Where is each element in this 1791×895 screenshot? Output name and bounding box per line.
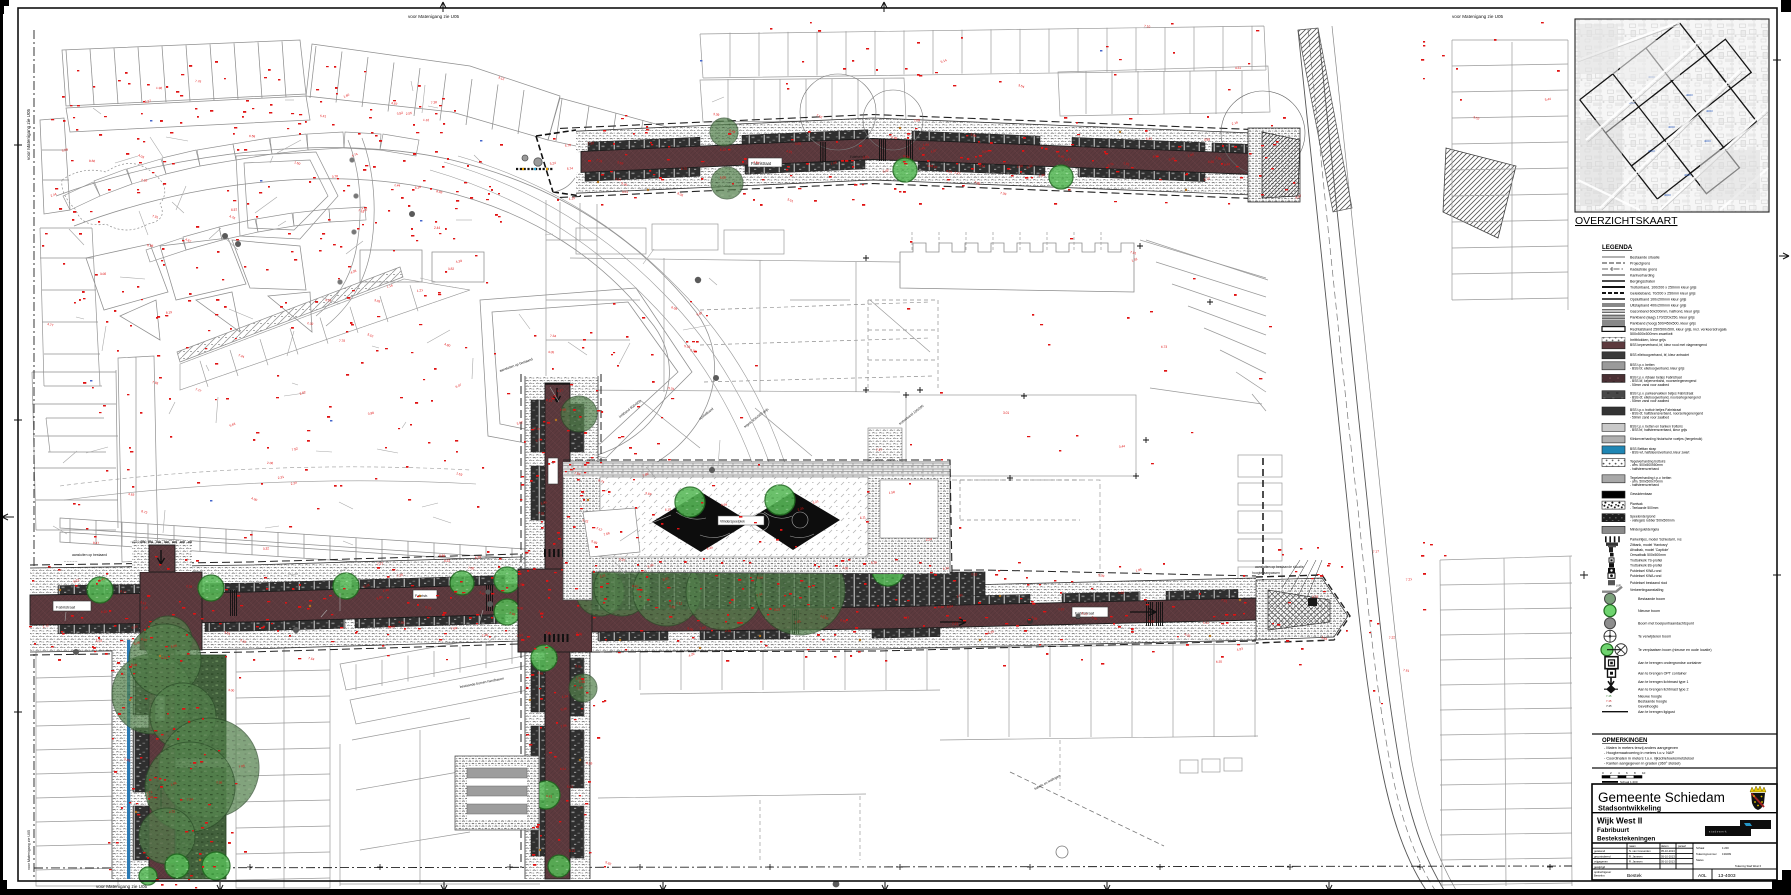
- svg-text:3.55: 3.55: [795, 142, 802, 146]
- svg-text:gecontroleerd: gecontroleerd: [1594, 854, 1611, 858]
- svg-text:Verkeertingaanstalling: Verkeertingaanstalling: [1630, 588, 1663, 592]
- svg-text:6.11: 6.11: [860, 515, 867, 520]
- svg-text:Afvalbak, model 'Capitole': Afvalbak, model 'Capitole': [1630, 548, 1669, 552]
- svg-text:5.00: 5.00: [517, 606, 524, 611]
- svg-text:5.41: 5.41: [320, 114, 327, 118]
- svg-text:6.70: 6.70: [681, 167, 688, 171]
- svg-text:Bestaande hoogte: Bestaande hoogte: [1638, 700, 1667, 704]
- svg-text:s t a d s w e r k: s t a d s w e r k: [1709, 830, 1727, 834]
- svg-text:8.29: 8.29: [586, 761, 593, 766]
- svg-text:- Kanten aangegeven in graden: - Kanten aangegeven in graden (360° stel…: [1604, 762, 1681, 766]
- svg-text:13-4003: 13-4003: [1718, 873, 1736, 879]
- svg-text:1.57: 1.57: [1058, 607, 1065, 612]
- svg-text:3.32: 3.32: [263, 546, 270, 551]
- svg-text:4.24: 4.24: [161, 656, 168, 660]
- svg-text:Bestekstekeningen: Bestekstekeningen: [1597, 836, 1655, 843]
- svg-text:Uitstapband 400x200mm kleur gr: Uitstapband 400x200mm kleur grijs: [1630, 303, 1687, 307]
- svg-text:Schaal: Schaal: [1696, 846, 1705, 850]
- svg-text:7.78: 7.78: [339, 339, 346, 343]
- svg-text:7.45: 7.45: [1606, 704, 1612, 708]
- svg-text:2.78: 2.78: [1312, 595, 1319, 599]
- svg-text:Bestaande boom: Bestaande boom: [1638, 597, 1665, 601]
- svg-text:7.10: 7.10: [1144, 24, 1151, 29]
- svg-text:6.61: 6.61: [560, 767, 566, 771]
- svg-text:4.64: 4.64: [979, 164, 986, 168]
- svg-text:7.35: 7.35: [842, 566, 849, 570]
- svg-text:2.98: 2.98: [560, 408, 567, 412]
- svg-text:voor Matenigang zie U05: voor Matenigang zie U05: [1452, 14, 1504, 19]
- svg-text:Aan te brengen ligigust: Aan te brengen ligigust: [1638, 710, 1675, 714]
- svg-text:8.26: 8.26: [871, 560, 878, 565]
- svg-text:3.64: 3.64: [982, 149, 989, 154]
- svg-text:8.47: 8.47: [93, 541, 99, 545]
- svg-text:getekend: getekend: [1594, 849, 1606, 853]
- svg-text:naam: naam: [1629, 845, 1636, 848]
- svg-text:OVERZICHTSKAART: OVERZICHTSKAART: [1575, 215, 1678, 227]
- svg-text:- Hoogtemaatvoering in meters: - Hoogtemaatvoering in meters t.o.v. NAP: [1604, 751, 1674, 755]
- svg-text:6.20: 6.20: [101, 610, 108, 614]
- svg-text:2.39: 2.39: [725, 629, 731, 633]
- svg-text:500x500x500mm zwart/wit: 500x500x500mm zwart/wit: [1630, 332, 1673, 336]
- svg-text:Kantverharding: Kantverharding: [1630, 273, 1654, 277]
- svg-text:2.06: 2.06: [267, 461, 274, 465]
- svg-text:7.27: 7.27: [876, 448, 882, 452]
- svg-text:Klinkerverharding historische: Klinkerverharding historische voetjes (h…: [1630, 437, 1702, 441]
- svg-text:4.05: 4.05: [548, 350, 555, 354]
- svg-text:3.08: 3.08: [100, 272, 106, 276]
- svg-text:7.02: 7.02: [468, 566, 475, 570]
- svg-text:4003: 4003: [1704, 139, 1711, 143]
- svg-text:3.95: 3.95: [1204, 137, 1211, 142]
- svg-text:6.35: 6.35: [1216, 660, 1223, 664]
- svg-text:7.45: 7.45: [1606, 699, 1612, 703]
- svg-text:05-10-2013: 05-10-2013: [1661, 860, 1675, 864]
- svg-text:- Coordinaten in meters t.o.v: - Coordinaten in meters t.o.v. rijksdrie…: [1604, 756, 1694, 760]
- svg-text:Te verplaatsen boom (nieuwe en: Te verplaatsen boom (nieuwe en oude loca…: [1638, 648, 1712, 652]
- svg-text:8.22: 8.22: [444, 559, 451, 563]
- svg-text:7.45: 7.45: [1606, 694, 1612, 698]
- svg-text:05-10-2013: 05-10-2013: [1661, 849, 1675, 853]
- svg-text:datum: datum: [1661, 844, 1669, 848]
- svg-text:7.22: 7.22: [1389, 635, 1396, 640]
- svg-text:Nieuwe boom: Nieuwe boom: [1638, 609, 1660, 613]
- svg-text:3.92: 3.92: [325, 298, 332, 303]
- svg-text:4003: 4003: [1684, 173, 1691, 177]
- svg-text:7.34: 7.34: [550, 334, 556, 338]
- svg-text:4003: 4003: [1686, 93, 1693, 97]
- svg-text:10: 10: [1642, 771, 1646, 775]
- svg-text:2.59: 2.59: [141, 178, 148, 183]
- svg-text:1.44: 1.44: [394, 183, 401, 188]
- svg-text:05-10-2013: 05-10-2013: [1661, 854, 1675, 858]
- svg-text:voor Matenigang zie U05: voor Matenigang zie U05: [27, 830, 31, 870]
- svg-text:1.96: 1.96: [156, 86, 163, 90]
- svg-text:Wijk West II: Wijk West II: [1597, 817, 1642, 826]
- svg-text:6.80: 6.80: [1208, 160, 1215, 164]
- svg-text:- halfsteensverband: - halfsteensverband: [1630, 483, 1659, 487]
- svg-text:5.07: 5.07: [774, 608, 780, 612]
- svg-text:Trottoirband, 100/200 x 250mm: Trottoirband, 100/200 x 250mm kleur grij…: [1630, 285, 1697, 289]
- svg-text:4.31: 4.31: [1235, 66, 1242, 70]
- svg-text:8.12: 8.12: [569, 849, 575, 853]
- svg-text:voor Matenigang zie U05: voor Matenigang zie U05: [96, 884, 148, 889]
- svg-text:Bestek: Bestek: [1627, 873, 1642, 879]
- svg-text:Te verwijderen boom: Te verwijderen boom: [1638, 635, 1671, 639]
- svg-text:Bestaande situatie: Bestaande situatie: [1630, 255, 1660, 259]
- svg-text:Rechtafsband 250/500x500, kleu: Rechtafsband 250/500x500, kleur grijs, i…: [1630, 327, 1727, 331]
- svg-text:Nieuwe hoogte: Nieuwe hoogte: [1638, 695, 1662, 699]
- svg-text:4003: 4003: [1668, 125, 1675, 129]
- svg-text:8.56: 8.56: [439, 554, 445, 558]
- svg-text:6.57: 6.57: [231, 208, 237, 212]
- svg-text:Tekeningnummer: Tekeningnummer: [1696, 852, 1717, 856]
- svg-text:5.54: 5.54: [96, 639, 103, 643]
- svg-text:4003: 4003: [1648, 149, 1655, 153]
- svg-text:Bergingsstraten: Bergingsstraten: [1630, 279, 1655, 283]
- svg-text:1:200: 1:200: [1722, 846, 1729, 850]
- svg-text:LEGENDA: LEGENDA: [1602, 244, 1633, 251]
- svg-text:hoogte aanpassen: hoogte aanpassen: [1252, 571, 1280, 575]
- svg-text:Stadsontwikkeling: Stadsontwikkeling: [1598, 804, 1661, 813]
- svg-text:2.44: 2.44: [434, 226, 440, 230]
- svg-text:Status: Status: [1696, 858, 1704, 862]
- svg-text:Parkband (hoog) 500/450x500, k: Parkband (hoog) 500/450x500, kleur grijs: [1630, 321, 1696, 325]
- svg-text:Putdeksel KWA-rond: Putdeksel KWA-rond: [1630, 569, 1661, 573]
- svg-text:8.67: 8.67: [632, 584, 639, 589]
- svg-text:- BSS wf, halfsteensverband,: - BSS wf, halfsteensverband, kleur zwart: [1630, 451, 1689, 455]
- svg-text:Tekening Stad West II: Tekening Stad West II: [1735, 864, 1761, 868]
- svg-text:Inritblokken, kleur grijs: Inritblokken, kleur grijs: [1630, 338, 1666, 342]
- svg-text:6.12: 6.12: [720, 148, 727, 152]
- svg-text:A0L: A0L: [1698, 873, 1707, 879]
- svg-text:4003: 4003: [1706, 109, 1713, 113]
- svg-text:7.27: 7.27: [377, 562, 384, 566]
- svg-text:Fabribuurt: Fabribuurt: [1597, 827, 1630, 834]
- svg-text:BSS elleboogverband, bf, kleur: BSS elleboogverband, bf, kleur antraciet: [1630, 353, 1689, 357]
- svg-text:Gazonband 60x200mm, halfrond,: Gazonband 60x200mm, halfrond, kleur grij…: [1630, 309, 1700, 313]
- svg-text:Geleideband, 70/200 x 250mm kl: Geleideband, 70/200 x 250mm kleur grijs: [1630, 291, 1696, 295]
- svg-text:- 50mm zand voor zaaibed: - 50mm zand voor zaaibed: [1630, 383, 1669, 387]
- svg-text:130299: 130299: [1722, 852, 1731, 856]
- svg-text:BSS keperverband, bf, kleur ro: BSS keperverband, bf, kleur rood met vla…: [1630, 343, 1707, 347]
- svg-text:8.66: 8.66: [89, 159, 95, 163]
- svg-text:- halfsteensverband: - halfsteensverband: [1630, 467, 1659, 471]
- svg-text:6.80: 6.80: [938, 605, 945, 609]
- svg-text:5.05: 5.05: [720, 175, 727, 180]
- svg-text:vrijgegeven: vrijgegeven: [1594, 860, 1608, 864]
- svg-text:5.04: 5.04: [757, 576, 764, 580]
- svg-text:8.03: 8.03: [131, 663, 138, 667]
- svg-text:Gesslotenbaan: Gesslotenbaan: [1630, 492, 1652, 496]
- svg-text:- 50mm zand voor zaaibed: - 50mm zand voor zaaibed: [1630, 399, 1669, 403]
- svg-text:6.41: 6.41: [1146, 136, 1153, 141]
- svg-text:opdrachtgever: opdrachtgever: [1594, 870, 1611, 874]
- svg-text:8.99: 8.99: [721, 503, 728, 507]
- svg-text:3.01: 3.01: [1003, 411, 1009, 415]
- svg-text:1.24: 1.24: [562, 694, 569, 699]
- svg-text:LVP: LVP: [1616, 584, 1621, 588]
- svg-text:voor Matenigang zie U05: voor Matenigang zie U05: [26, 108, 31, 160]
- svg-text:Aan te brengen ondergrondse co: Aan te brengen ondergrondse container: [1638, 661, 1702, 665]
- svg-text:- 50mm zand voor zaaibed: - 50mm zand voor zaaibed: [1630, 415, 1669, 419]
- svg-text:Trottoirkolk 8S-profiel: Trottoirkolk 8S-profiel: [1630, 564, 1662, 568]
- svg-text:1.16: 1.16: [423, 118, 430, 122]
- svg-text:1.12: 1.12: [676, 601, 683, 606]
- svg-text:3.00: 3.00: [228, 688, 235, 693]
- svg-text:R. Janssen: R. Janssen: [1629, 854, 1643, 858]
- svg-text:7.78: 7.78: [195, 79, 202, 84]
- svg-text:3.82: 3.82: [1118, 591, 1124, 595]
- svg-text:Vlinderspeelplek: Vlinderspeelplek: [720, 520, 745, 524]
- svg-text:Opsluitband 100x200mm kleur gr: Opsluitband 100x200mm kleur grijs: [1630, 297, 1687, 301]
- svg-text:OPMERKINGEN: OPMERKINGEN: [1602, 738, 1647, 744]
- svg-text:1.62: 1.62: [971, 572, 978, 577]
- svg-text:3.82: 3.82: [448, 267, 455, 271]
- svg-text:Projectgrens: Projectgrens: [1630, 261, 1650, 265]
- svg-text:Kadastrale grens: Kadastrale grens: [1630, 267, 1657, 271]
- svg-text:Aan te brengen OPT container: Aan te brengen OPT container: [1638, 672, 1687, 676]
- svg-text:- Maten in meters tenzij ande: - Maten in meters tenzij anders aangegev…: [1604, 746, 1678, 750]
- svg-text:Omvatbalk 500x500mm: Omvatbalk 500x500mm: [1630, 553, 1666, 557]
- svg-text:voor Matenigang zie U05: voor Matenigang zie U05: [408, 14, 460, 19]
- svg-text:7.27: 7.27: [952, 622, 958, 626]
- svg-text:aansluiten op bestaand: aansluiten op bestaand: [72, 553, 107, 557]
- svg-text:6.73: 6.73: [1161, 345, 1167, 349]
- svg-text:Gevelhoogte: Gevelhoogte: [1638, 705, 1658, 709]
- svg-text:3.61: 3.61: [622, 190, 629, 194]
- svg-text:Zitbank, model 'Hantvary': Zitbank, model 'Hantvary': [1630, 543, 1668, 547]
- svg-text:_ _ _ _ _: _ _ _ _ _: [63, 558, 77, 562]
- svg-text:N. van Coeverden: N. van Coeverden: [1629, 849, 1651, 853]
- svg-text:- BSS bf, halfsteensverband,: - BSS bf, halfsteensverband, kleur grijs: [1630, 428, 1687, 432]
- svg-text:Putdeksel bestaand riool: Putdeksel bestaand riool: [1630, 581, 1667, 585]
- svg-text:5.74: 5.74: [567, 166, 574, 171]
- svg-text:- valtegels rubber 500x500mm: - valtegels rubber 500x500mm: [1630, 518, 1675, 522]
- svg-text:Boom met boeipunt/aandachtspun: Boom met boeipunt/aandachtspunt: [1638, 622, 1694, 626]
- svg-text:Minderguletderigela: Minderguletderigela: [1630, 527, 1659, 531]
- svg-text:Aan te brengen lichtmast type: Aan te brengen lichtmast type 1: [1638, 680, 1689, 684]
- svg-text:Aan te brengen lichtmast type: Aan te brengen lichtmast type 2: [1638, 688, 1689, 692]
- svg-text:Putdeksel KWA-rond: Putdeksel KWA-rond: [1630, 574, 1661, 578]
- svg-text:- BSS bf, elleboogverband, kl: - BSS bf, elleboogverband, kleur grijs: [1630, 367, 1685, 371]
- svg-text:- Teelaarde 500mm: - Teelaarde 500mm: [1630, 506, 1659, 510]
- svg-text:Parkeintjes, model 'Schiedam',: Parkeintjes, model 'Schiedam', rvs: [1630, 538, 1682, 542]
- svg-text:5.11: 5.11: [1203, 621, 1209, 625]
- svg-text:2.72: 2.72: [169, 809, 176, 814]
- svg-text:Trottoirkolk 7S-profiel: Trottoirkolk 7S-profiel: [1630, 558, 1662, 562]
- svg-text:gewijzigd: gewijzigd: [1594, 865, 1606, 869]
- svg-text:5.01: 5.01: [567, 785, 574, 789]
- svg-text:6.41: 6.41: [546, 794, 553, 799]
- svg-text:R. Janssen: R. Janssen: [1629, 860, 1643, 864]
- svg-text:Fabristraat: Fabristraat: [56, 605, 76, 610]
- svg-text:6.58: 6.58: [249, 134, 256, 138]
- svg-text:1.66: 1.66: [579, 680, 585, 684]
- svg-text:paraaf: paraaf: [1678, 844, 1686, 848]
- svg-text:Besteknr.: Besteknr.: [1594, 874, 1605, 878]
- svg-text:6.10: 6.10: [665, 507, 672, 512]
- svg-text:7.24: 7.24: [187, 797, 194, 802]
- svg-text:Parkband (laag) 170/220x250, k: Parkband (laag) 170/220x250, kleur grijs: [1630, 315, 1695, 319]
- svg-text:4003: 4003: [1664, 193, 1671, 197]
- svg-text:Fabristr.: Fabristr.: [415, 594, 428, 598]
